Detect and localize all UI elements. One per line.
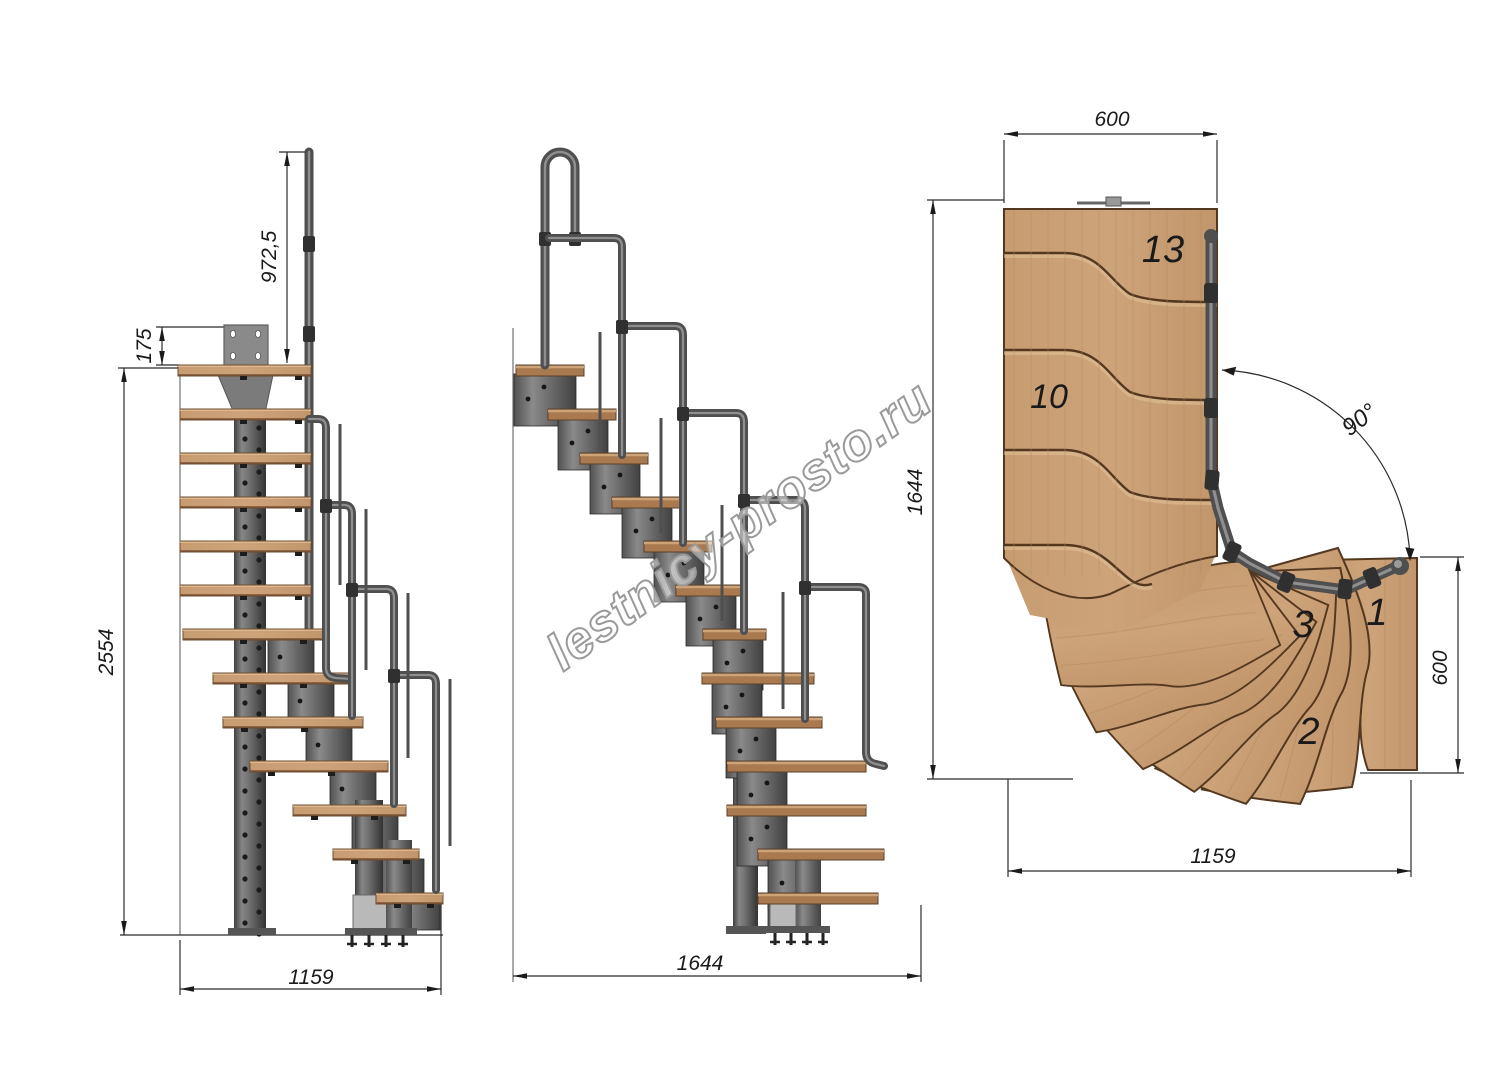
svg-text:13: 13	[1142, 229, 1184, 271]
svg-text:972,5: 972,5	[258, 230, 281, 283]
svg-text:600: 600	[1094, 108, 1129, 131]
svg-text:1: 1	[1366, 592, 1387, 634]
svg-text:1159: 1159	[1190, 845, 1235, 868]
svg-text:10: 10	[1030, 378, 1068, 416]
svg-text:3: 3	[1292, 604, 1313, 646]
svg-text:2: 2	[1297, 711, 1319, 753]
svg-text:600: 600	[1429, 650, 1452, 685]
svg-text:1644: 1644	[904, 469, 927, 516]
svg-text:175: 175	[133, 328, 156, 363]
svg-text:2554: 2554	[95, 629, 118, 677]
svg-text:1159: 1159	[288, 966, 333, 989]
svg-text:1644: 1644	[677, 952, 724, 975]
